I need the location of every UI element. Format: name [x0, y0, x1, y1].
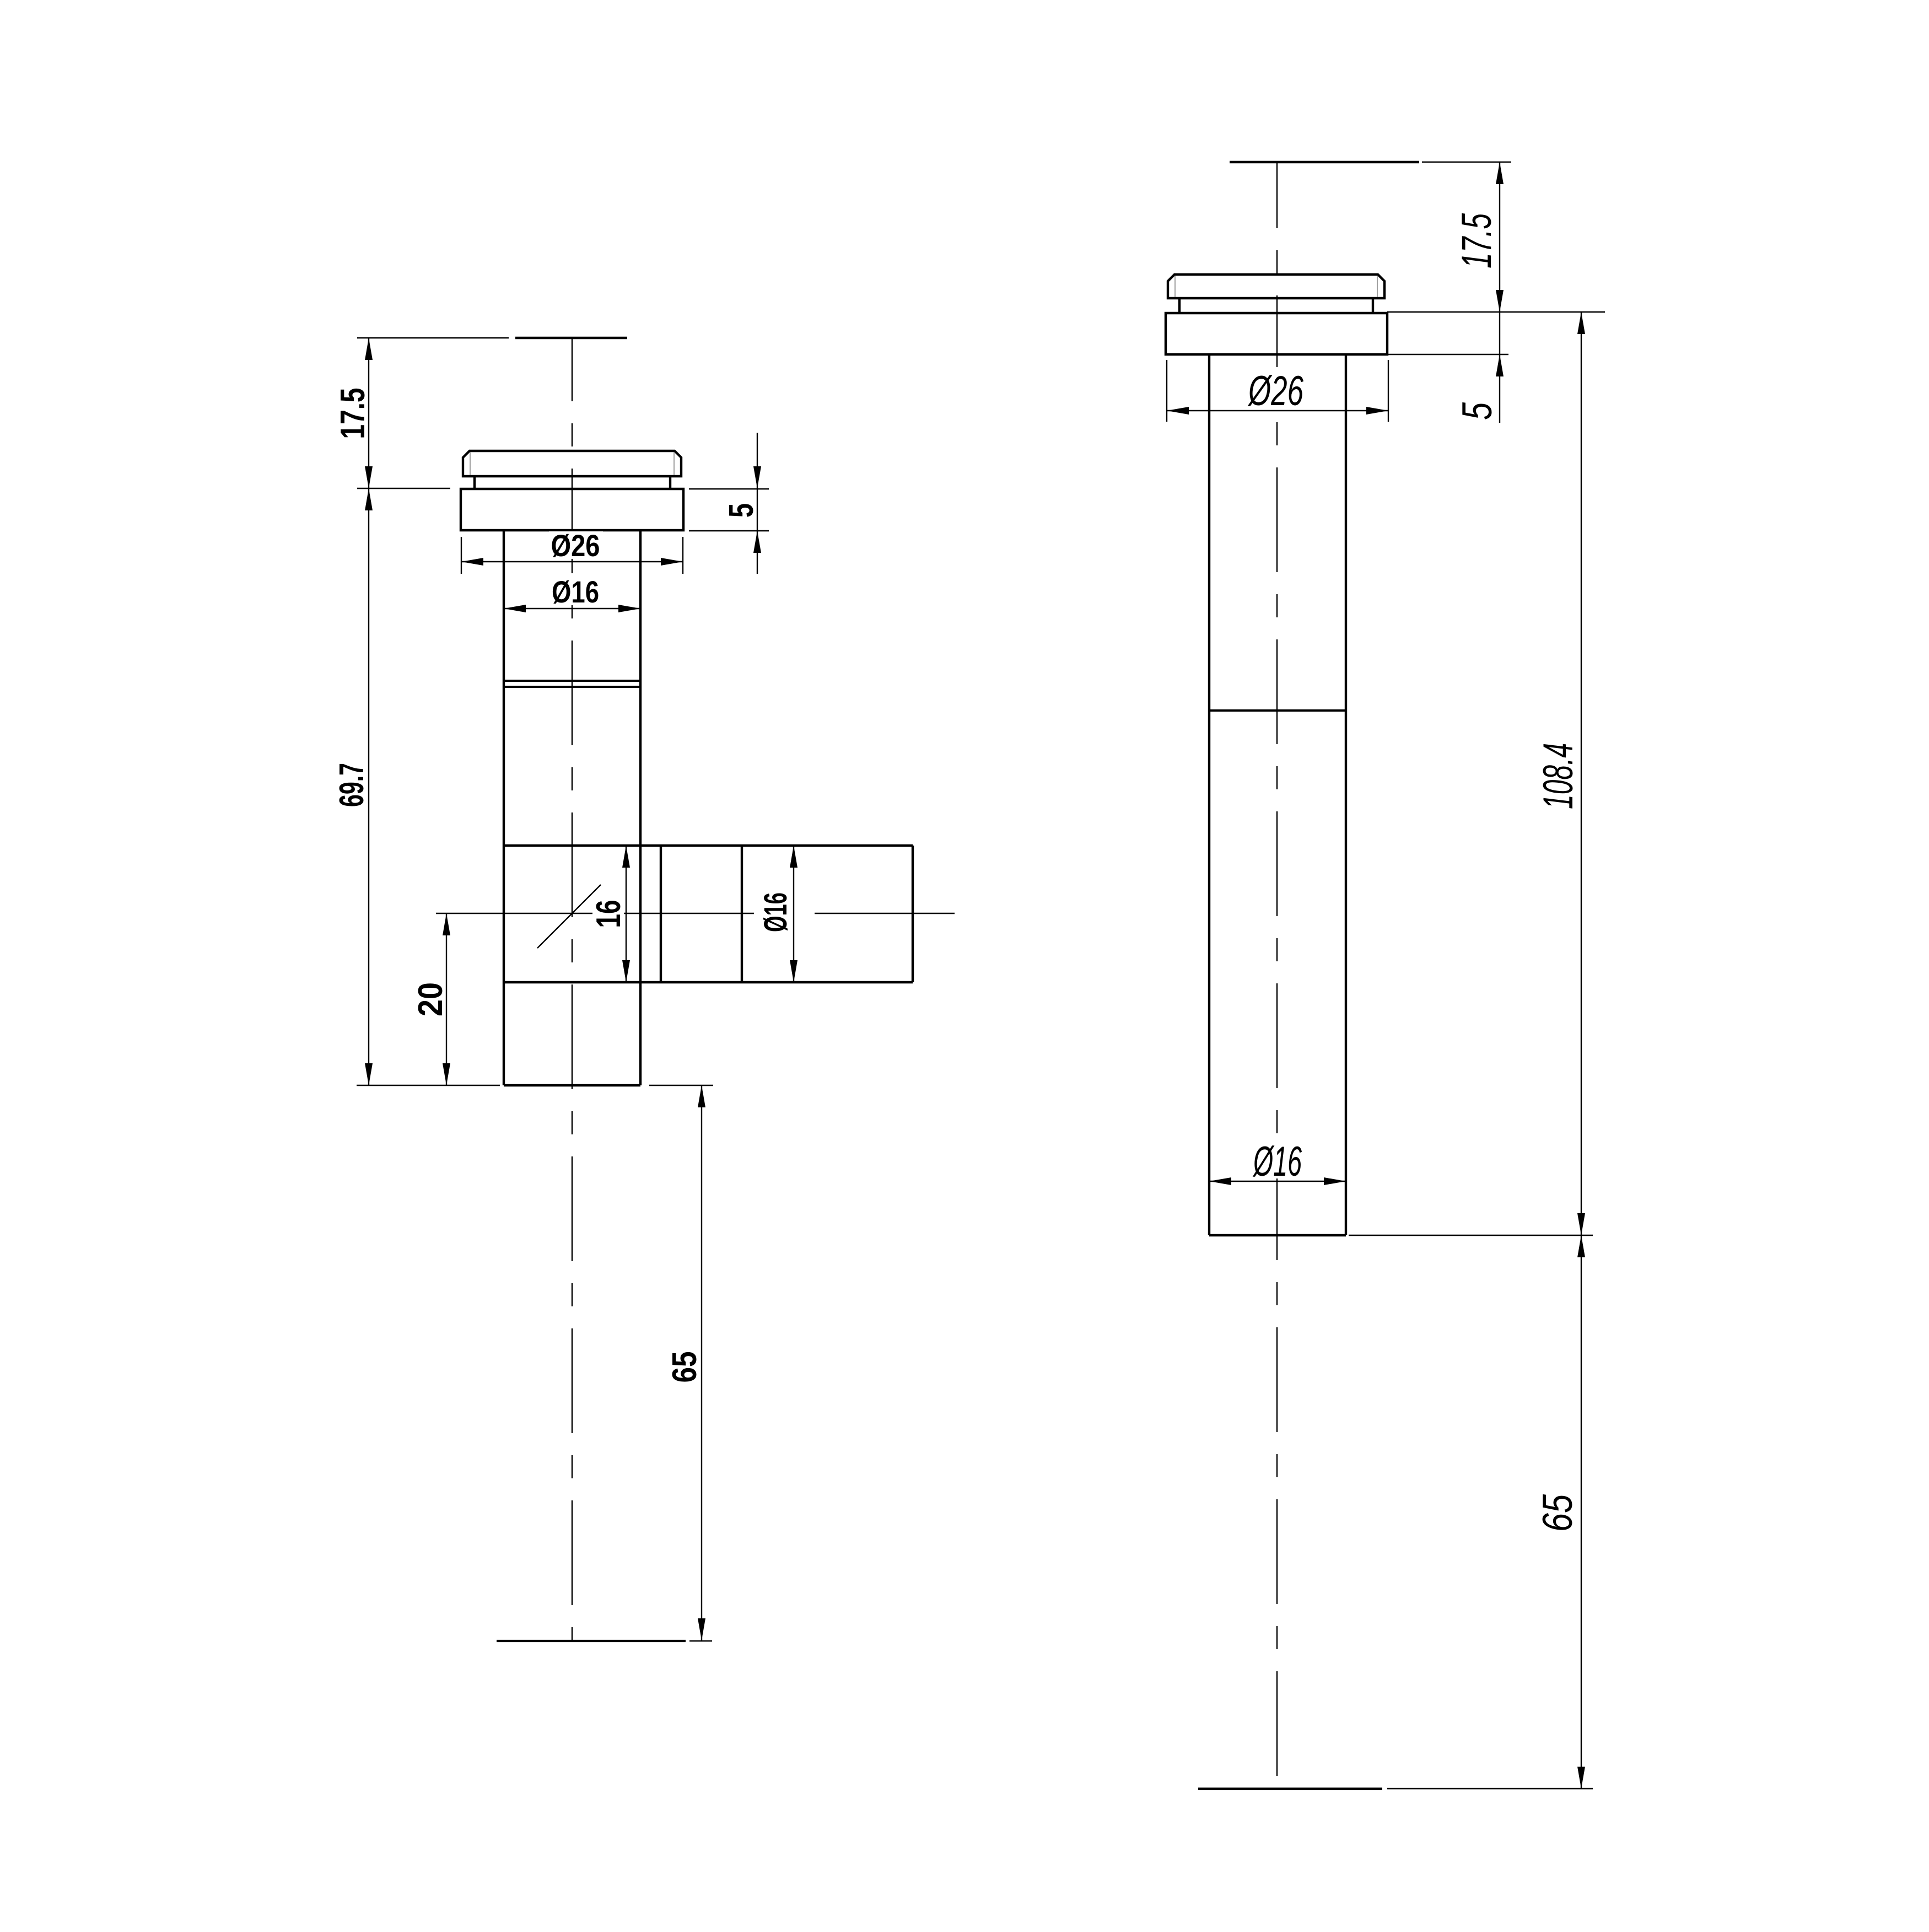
- svg-text:16: 16: [590, 900, 628, 928]
- svg-text:20: 20: [412, 982, 450, 1016]
- svg-text:17.5: 17.5: [1453, 213, 1500, 268]
- svg-text:Ø16: Ø16: [1252, 1138, 1302, 1185]
- svg-text:17.5: 17.5: [334, 388, 372, 439]
- svg-text:Ø26: Ø26: [551, 528, 600, 563]
- svg-text:Ø16: Ø16: [552, 574, 599, 609]
- svg-text:Ø16: Ø16: [758, 892, 794, 932]
- svg-text:108.4: 108.4: [1535, 743, 1582, 809]
- svg-text:65: 65: [1534, 1494, 1581, 1532]
- svg-text:69.7: 69.7: [333, 763, 371, 807]
- svg-text:5: 5: [1454, 402, 1501, 420]
- svg-text:Ø26: Ø26: [1247, 368, 1304, 415]
- svg-text:5: 5: [723, 503, 761, 518]
- svg-text:65: 65: [666, 1352, 704, 1383]
